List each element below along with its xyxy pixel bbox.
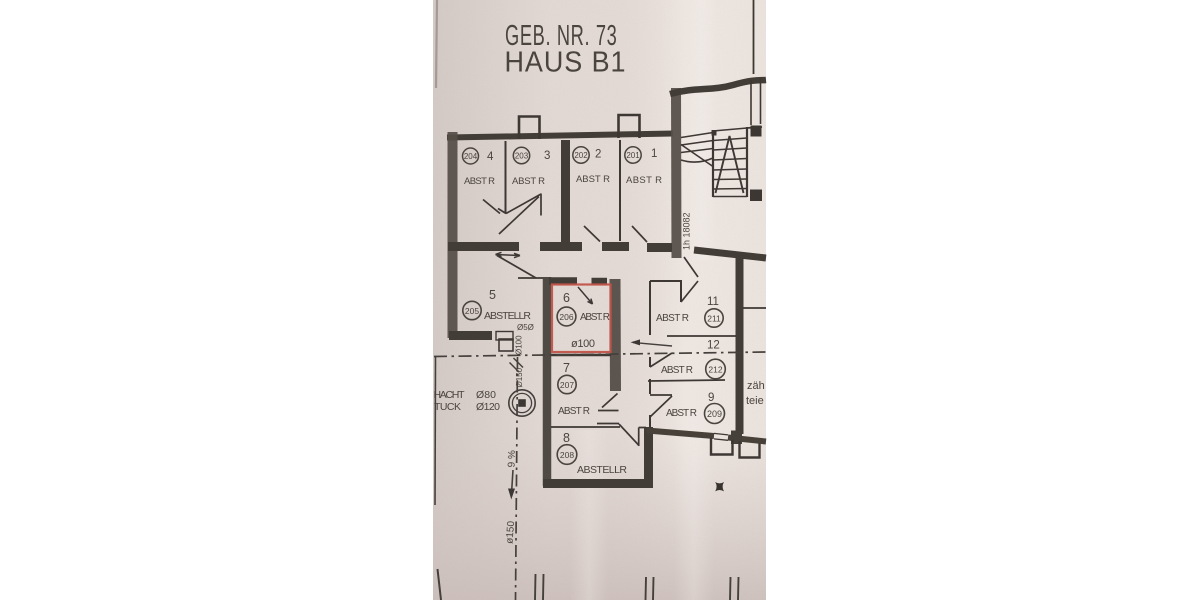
svg-text:212: 212: [708, 365, 722, 375]
svg-text:HACHT: HACHT: [434, 389, 466, 401]
svg-text:202: 202: [574, 151, 588, 160]
svg-text:1h 18082: 1h 18082: [682, 212, 692, 250]
svg-text:ABST R: ABST R: [464, 176, 495, 187]
svg-text:ø150: ø150: [505, 520, 518, 544]
svg-text:TUCK: TUCK: [434, 401, 461, 413]
svg-text:6: 6: [563, 291, 570, 305]
svg-text:12: 12: [707, 340, 720, 352]
svg-text:4: 4: [487, 151, 494, 163]
svg-text:ABST. R: ABST. R: [580, 312, 610, 323]
svg-text:zäh: zäh: [747, 380, 765, 392]
svg-text:ABST R: ABST R: [666, 408, 697, 419]
svg-text:2: 2: [595, 149, 601, 161]
svg-text:208: 208: [560, 450, 574, 460]
svg-text:ABSTELLR: ABSTELLR: [484, 310, 531, 322]
svg-text:ø100: ø100: [571, 338, 595, 350]
svg-text:Ø80: Ø80: [476, 389, 496, 401]
svg-text:207: 207: [560, 380, 574, 390]
svg-text:Ø5Ø: Ø5Ø: [517, 323, 534, 332]
svg-text:HAUS B1: HAUS B1: [505, 46, 627, 78]
svg-text:205: 205: [465, 306, 479, 316]
svg-text:ABST R: ABST R: [576, 174, 610, 185]
svg-text:Ø100: Ø100: [515, 335, 524, 355]
svg-text:203: 203: [515, 152, 529, 161]
svg-text:206: 206: [559, 312, 573, 322]
svg-text:7: 7: [563, 361, 570, 375]
svg-text:ABST R: ABST R: [626, 175, 662, 186]
svg-text:Ø150: Ø150: [515, 367, 524, 387]
svg-text:5: 5: [489, 288, 496, 302]
svg-text:ABST R: ABST R: [512, 176, 545, 187]
svg-text:Ø120: Ø120: [476, 401, 500, 413]
svg-text:8: 8: [563, 431, 570, 445]
svg-text:209: 209: [707, 409, 722, 419]
svg-text:teie: teie: [746, 395, 764, 407]
svg-text:ABST R: ABST R: [661, 365, 693, 376]
svg-text:ABST R: ABST R: [558, 406, 590, 417]
svg-text:1: 1: [651, 148, 657, 160]
svg-text:3: 3: [544, 150, 550, 162]
svg-text:211: 211: [707, 314, 721, 324]
svg-text:ABSTELLR: ABSTELLR: [577, 464, 627, 476]
svg-text:9 %: 9 %: [507, 450, 519, 468]
svg-text:ABST R: ABST R: [656, 313, 689, 324]
svg-text:9: 9: [708, 392, 714, 404]
svg-text:204: 204: [464, 152, 478, 161]
svg-text:201: 201: [626, 151, 640, 160]
svg-text:11: 11: [707, 296, 719, 308]
